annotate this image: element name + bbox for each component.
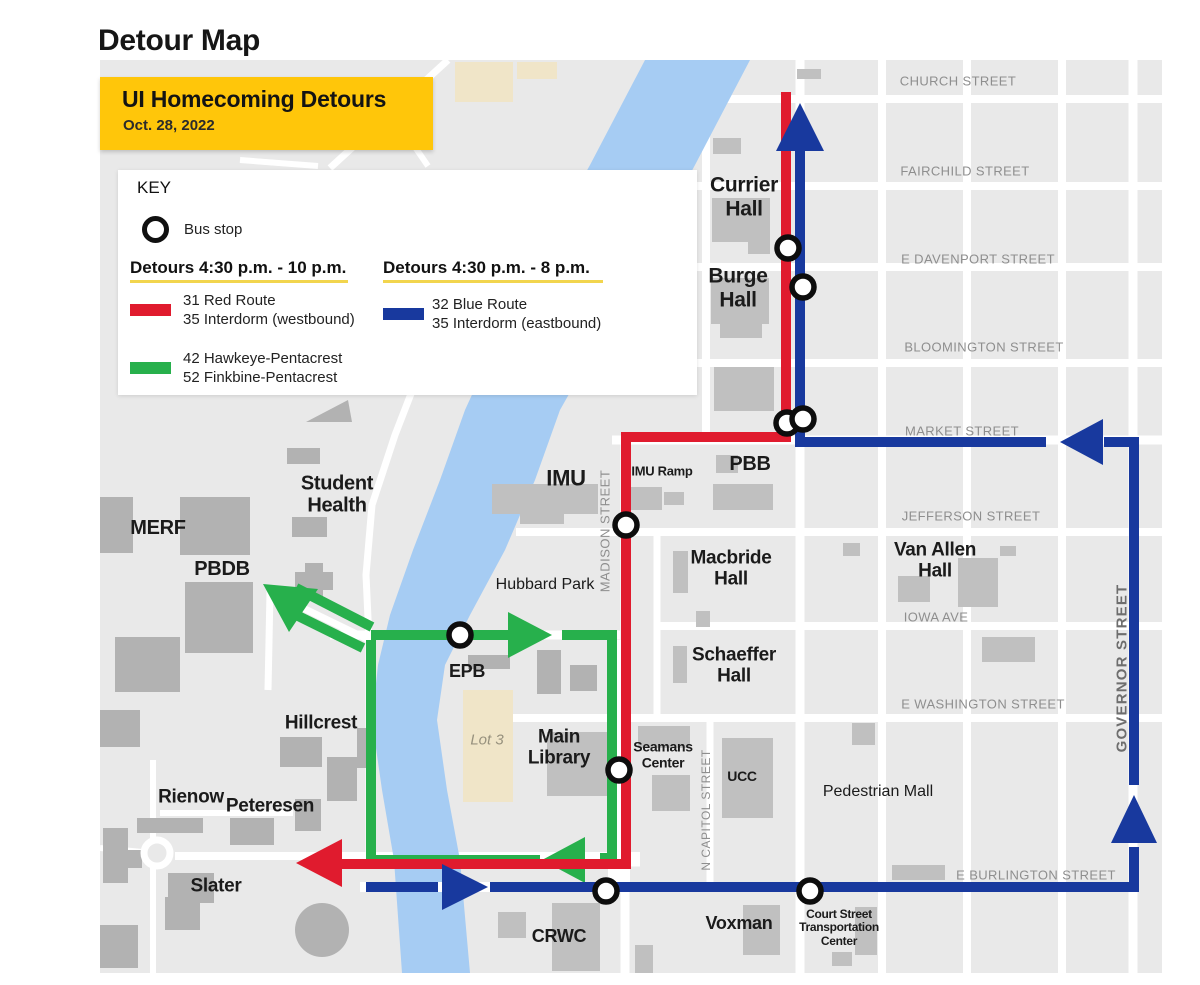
bus-stop-currier — [777, 237, 799, 259]
label-court-street-tc: Court Street Transportation Center — [789, 908, 889, 948]
banner-date: Oct. 28, 2022 — [123, 117, 215, 134]
bus-stop-court-street — [799, 880, 821, 902]
label-epb: EPB — [449, 661, 485, 681]
label-crwc: CRWC — [532, 926, 586, 946]
label-imu-ramp: IMU Ramp — [631, 465, 692, 480]
label-main-library: Main Library — [517, 727, 601, 770]
green-route-legend: 42 Hawkeye-Pentacrest 52 Finkbine-Pentac… — [183, 349, 342, 387]
bus-stop-epb — [449, 624, 471, 646]
street-label-governor: GOVERNOR STREET — [1114, 584, 1131, 753]
street-label-washington: E WASHINGTON STREET — [901, 697, 1065, 712]
label-schaeffer-hall: Schaeffer Hall — [680, 645, 788, 688]
street-label-iowa-ave: IOWA AVE — [904, 610, 969, 625]
label-pbdb: PBDB — [194, 558, 249, 580]
label-burge-hall: Burge Hall — [703, 264, 773, 311]
street-label-church: CHURCH STREET — [900, 74, 1016, 89]
red-route-line1: 31 Red Route — [183, 291, 355, 310]
red-route-line2: 35 Interdorm (westbound) — [183, 310, 355, 329]
page-title: Detour Map — [98, 24, 260, 58]
green-route-swatch — [130, 362, 171, 374]
label-peteresen: Peteresen — [226, 795, 314, 816]
red-route-legend: 31 Red Route 35 Interdorm (westbound) — [183, 291, 355, 329]
detour-map-page: CHURCH STREET FAIRCHILD STREET E DAVENPO… — [0, 0, 1200, 985]
red-route-swatch — [130, 304, 171, 316]
street-label-davenport: E DAVENPORT STREET — [901, 252, 1055, 267]
street-label-fairchild: FAIRCHILD STREET — [900, 164, 1029, 179]
label-pbb: PBB — [729, 453, 770, 475]
label-merf: MERF — [130, 517, 185, 539]
bus-stop-label: Bus stop — [184, 221, 242, 238]
label-voxman: Voxman — [706, 913, 773, 933]
street-label-market: MARKET STREET — [905, 424, 1019, 439]
bus-stop-crwc — [595, 880, 617, 902]
label-currier-hall: Currier Hall — [701, 173, 787, 220]
label-lot-3: Lot 3 — [470, 733, 503, 750]
label-imu: IMU — [546, 467, 585, 492]
roundabout — [144, 840, 170, 866]
green-route-line1: 42 Hawkeye-Pentacrest — [183, 349, 342, 368]
blue-route-swatch — [383, 308, 424, 320]
street-label-jefferson: JEFFERSON STREET — [902, 509, 1041, 524]
banner-title: UI Homecoming Detours — [122, 86, 386, 113]
map-key-panel: KEY Bus stop Detours 4:30 p.m. - 10 p.m.… — [118, 170, 697, 395]
bus-stop-imu — [615, 514, 637, 536]
blue-route-line1: 32 Blue Route — [432, 295, 601, 314]
blue-route-line2: 35 Interdorm (eastbound) — [432, 314, 601, 333]
label-hillcrest: Hillcrest — [285, 712, 357, 733]
bus-stop-icon — [142, 216, 169, 243]
bus-stop-burge — [792, 276, 814, 298]
key-col2-rule — [383, 280, 603, 283]
key-col1-heading: Detours 4:30 p.m. - 10 p.m. — [130, 258, 346, 278]
street-label-burlington: E BURLINGTON STREET — [956, 868, 1116, 883]
street-label-madison: MADISON STREET — [598, 470, 613, 593]
homecoming-banner: UI Homecoming Detours Oct. 28, 2022 — [100, 77, 433, 150]
label-hubbard-park: Hubbard Park — [496, 576, 595, 594]
label-pedestrian-mall: Pedestrian Mall — [823, 783, 933, 801]
label-student-health: Student Health — [289, 473, 385, 518]
key-col2-heading: Detours 4:30 p.m. - 8 p.m. — [383, 258, 590, 278]
key-heading: KEY — [137, 178, 171, 198]
label-slater: Slater — [190, 875, 241, 896]
street-label-bloomington: BLOOMINGTON STREET — [904, 340, 1063, 355]
label-ucc: UCC — [727, 769, 756, 785]
label-van-allen-hall: Van Allen Hall — [885, 540, 985, 583]
label-seamans-center: Seamans Center — [621, 739, 705, 770]
key-col1-rule — [130, 280, 348, 283]
label-rienow: Rienow — [158, 786, 224, 807]
label-macbride-hall: Macbride Hall — [679, 548, 783, 591]
green-route-line2: 52 Finkbine-Pentacrest — [183, 368, 342, 387]
bus-stop-market-east — [792, 408, 814, 430]
blue-route-legend: 32 Blue Route 35 Interdorm (eastbound) — [432, 295, 601, 333]
